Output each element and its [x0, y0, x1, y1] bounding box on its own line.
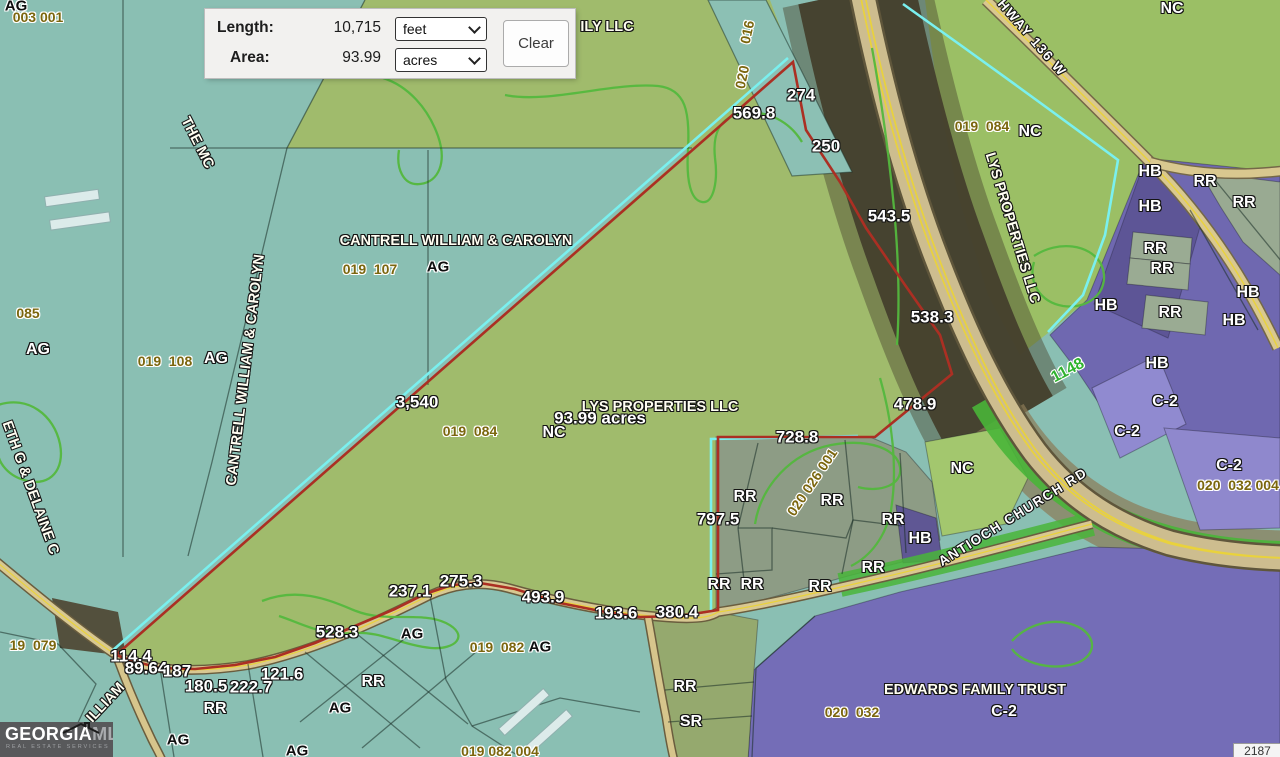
map-application: AG003 001ILY LLC016020NCHWAY 136 W274569… [0, 0, 1280, 757]
map-label: 493.9 [522, 589, 565, 606]
clear-button[interactable]: Clear [503, 20, 569, 67]
map-label: RR [1232, 195, 1255, 211]
map-label: 193.6 [595, 605, 638, 622]
map-label: 3,540 [396, 394, 439, 411]
map-label: RR [808, 579, 831, 595]
map-label: RR [1158, 305, 1181, 321]
map-label: 538.3 [911, 309, 954, 326]
chevron-down-icon [468, 21, 481, 34]
map-label: HB [1138, 199, 1161, 215]
area-value: 93.99 [275, 49, 381, 67]
length-value: 10,715 [275, 19, 381, 37]
map-label: 019 108 [138, 354, 193, 368]
map-label: 019 082 004 [461, 744, 539, 757]
map-label: NC [950, 461, 973, 477]
map-label: 085 [16, 306, 39, 320]
map-label: RR [740, 577, 763, 593]
area-label: Area: [230, 49, 270, 67]
logo-tagline: REAL ESTATE SERVICES [0, 744, 113, 750]
map-label: RR [881, 512, 904, 528]
map-label: AG [26, 342, 50, 358]
map-label: LYS PROPERTIES LLC [982, 151, 1042, 305]
map-label: 19 079 [10, 638, 57, 652]
map-label: RR [861, 560, 884, 576]
map-label: 93.99 acres [554, 410, 646, 427]
map-label: C-2 [1152, 394, 1178, 410]
map-label: 543.5 [868, 208, 911, 225]
length-unit-value: feet [403, 21, 426, 37]
map-label: AG [329, 701, 352, 716]
map-label: 222.7 [230, 679, 273, 696]
map-label: 1148 [1049, 356, 1087, 386]
map-label: HB [1222, 313, 1245, 329]
map-label: ETH G & DELAINE C [0, 419, 61, 556]
map-label: AG [427, 260, 450, 275]
map-label: 019 107 [343, 262, 398, 276]
map-label: NC [1160, 1, 1183, 17]
map-label: SR [680, 714, 702, 730]
map-label: C-2 [1216, 458, 1242, 474]
map-label: 797.5 [697, 511, 740, 528]
map-label: 528.3 [316, 624, 359, 641]
map-label: 274 [787, 87, 815, 104]
map-label: 237.1 [389, 583, 432, 600]
length-unit-select[interactable]: feet [395, 17, 487, 41]
map-label: 003 001 [13, 10, 64, 24]
map-label: 728.8 [776, 429, 819, 446]
map-label: HB [908, 531, 931, 547]
map-label: 478.9 [894, 396, 937, 413]
map-label: AG [204, 351, 228, 367]
map-label: NC [1018, 124, 1041, 140]
map-label: CANTRELL WILLIAM & CAROLYN [225, 254, 268, 487]
map-label: AG [529, 640, 552, 655]
map-label: AG [401, 627, 424, 642]
map-label: AG [167, 733, 190, 748]
map-label: RR [820, 493, 843, 509]
map-label: 380.4 [656, 604, 699, 621]
map-label: 020 032 [825, 705, 880, 719]
map-label: 020 032 004 [1197, 478, 1279, 492]
area-unit-select[interactable]: acres [395, 48, 487, 72]
map-label: 019 082 [470, 640, 525, 654]
map-label: RR [1143, 241, 1166, 257]
georgia-mls-logo: GEORGIAMLS REAL ESTATE SERVICES [0, 722, 113, 757]
map-label: RR [203, 701, 226, 717]
area-unit-value: acres [403, 52, 437, 68]
map-label: C-2 [991, 704, 1017, 720]
map-label: CANTRELL WILLIAM & CAROLYN [340, 234, 573, 249]
map-label: RR [1150, 261, 1173, 277]
map-label: RR [1193, 174, 1216, 190]
length-label: Length: [217, 19, 274, 37]
map-label: 016 [738, 19, 757, 45]
map-label: ILY LLC [580, 20, 633, 35]
map-label: HB [1094, 298, 1117, 314]
map-label: RR [361, 674, 384, 690]
map-label: 569.8 [733, 105, 776, 122]
map-label: ANTIOCH CHURCH RD [936, 466, 1089, 569]
map-label: HB [1138, 164, 1161, 180]
map-label: NC [542, 425, 565, 441]
measure-panel: Length: 10,715 feet Area: 93.99 acres Cl… [205, 9, 575, 78]
map-label: RR [673, 679, 696, 695]
map-label: 019 084 [443, 424, 498, 438]
map-label: 180.5 [185, 678, 228, 695]
map-label: EDWARDS FAMILY TRUST [884, 683, 1066, 698]
map-label: AG [286, 744, 309, 757]
map-label: 019 084 [955, 119, 1010, 133]
map-label: THE MC [178, 115, 216, 171]
map-label: RR [733, 489, 756, 505]
map-label: HWAY 136 W [995, 0, 1069, 79]
chevron-down-icon [468, 52, 481, 65]
map-label: ILLIAM [84, 680, 128, 725]
map-label: 275.3 [440, 573, 483, 590]
map-label: HB [1236, 285, 1259, 301]
map-label: 020 [733, 64, 752, 90]
grid-number-box: 2187 [1233, 743, 1280, 757]
map-label: 89.64 [125, 660, 168, 677]
map-label-layer: AG003 001ILY LLC016020NCHWAY 136 W274569… [0, 0, 1280, 757]
map-label: C-2 [1114, 424, 1140, 440]
map-label: 250 [812, 138, 840, 155]
map-label: HB [1145, 356, 1168, 372]
map-label: RR [707, 577, 730, 593]
